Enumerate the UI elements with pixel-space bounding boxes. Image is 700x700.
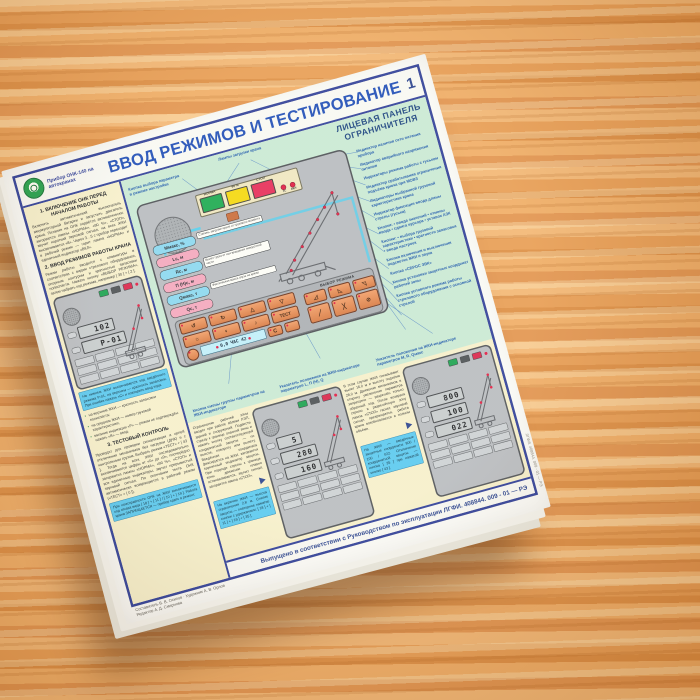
side-button xyxy=(416,400,426,408)
lamp-stop: СТОП xyxy=(250,179,276,200)
poster-frame: Прибор ОНК-140 на автокранах ВВОД РЕЖИМО… xyxy=(12,64,538,608)
side-button xyxy=(67,331,77,339)
green-button xyxy=(98,289,109,298)
lcd-led xyxy=(216,345,219,348)
page-number: 1 xyxy=(405,74,418,93)
power-led xyxy=(334,393,338,397)
callout-left: Кнопка выбора параметра в режиме настрой… xyxy=(128,173,185,197)
mode-button: ╳ xyxy=(331,295,357,317)
note-box: На верхнем ЖКИ — высота ограничения 2,8 … xyxy=(213,486,276,529)
dark-button xyxy=(309,396,320,405)
photo-scene: Прибор ОНК-140 на автокранах ВВОД РЕЖИМО… xyxy=(0,0,700,700)
spare-button xyxy=(284,319,301,333)
red-button xyxy=(321,393,332,402)
power-led xyxy=(135,282,139,286)
green-button xyxy=(447,358,458,367)
speaker-icon xyxy=(410,375,432,397)
note-box: На ЖКИ — введённые защитные координаты 8… xyxy=(360,431,424,478)
side-button xyxy=(71,346,81,354)
speaker-icon xyxy=(259,417,281,439)
mode-button: ⊘ xyxy=(355,288,381,310)
lcd-led xyxy=(248,336,251,339)
pointer-triangle-icon xyxy=(405,421,413,429)
on-led: ВКЛ xyxy=(289,181,296,188)
side-button xyxy=(270,457,280,465)
red-button xyxy=(122,282,133,291)
band-col2-body: В этом случае ЖКИ показывают вылет 16,0 … xyxy=(343,369,412,434)
side-button xyxy=(274,472,284,480)
side-button xyxy=(266,442,276,450)
ts-led-label: ТС xyxy=(280,189,289,194)
dark-button xyxy=(110,285,121,294)
mode-button: ╱ xyxy=(307,302,333,324)
clear-button: C xyxy=(267,324,284,338)
ts-led: ТС xyxy=(280,184,287,191)
lamp-90: 90 % xyxy=(225,186,251,207)
poster-sheet: Прибор ОНК-140 на автокранах ВВОД РЕЖИМО… xyxy=(1,54,551,624)
green-button xyxy=(297,400,308,409)
red-button xyxy=(472,351,483,360)
on-led-label: ВКЛ xyxy=(289,186,298,191)
power-led xyxy=(484,351,488,355)
lamp-norma: НОРМА xyxy=(199,193,225,214)
poster-paper: Прибор ОНК-140 на автокранах ВВОД РЕЖИМО… xyxy=(1,54,551,624)
dark-button xyxy=(460,355,471,364)
speaker-icon xyxy=(61,306,83,328)
round-button xyxy=(186,347,201,362)
hour-meter-text: 0,0 ЧАС 42 xyxy=(220,336,247,348)
brand-logo-icon xyxy=(21,175,47,201)
side-button xyxy=(420,415,430,423)
led-cluster: ТС ВКЛ xyxy=(280,181,296,191)
pointer-triangle-icon xyxy=(259,476,267,484)
side-button xyxy=(424,430,434,438)
logo-caption: Прибор ОНК-140 на автокранах xyxy=(46,163,107,190)
